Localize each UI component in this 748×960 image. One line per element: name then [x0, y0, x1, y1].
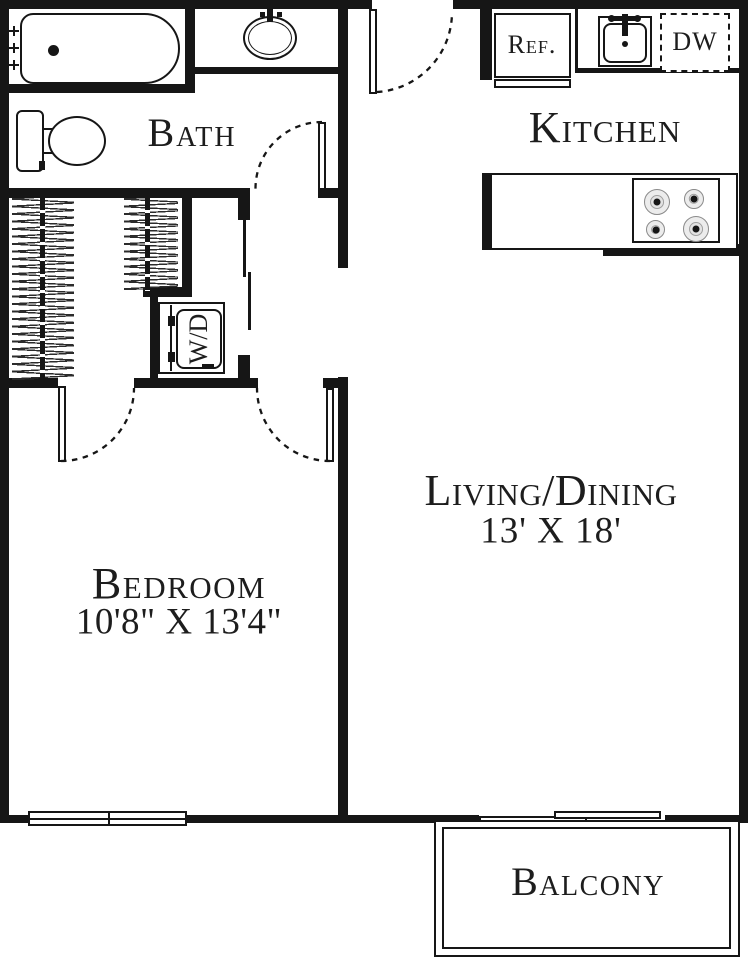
- balcony-label: Balcony: [511, 862, 665, 902]
- burner-dot: [691, 196, 698, 203]
- burner-dot: [654, 199, 661, 206]
- wall-bottom-bedroom-b: [187, 815, 345, 823]
- wall-left: [0, 0, 9, 823]
- wd-hinge-bottom: [168, 352, 175, 362]
- bedroom-closet-door-leaf: [58, 386, 66, 462]
- wall-tub-bottom: [9, 84, 195, 93]
- wall-kitchen-left: [480, 8, 492, 80]
- kitchen-faucet-handle-left: [608, 15, 615, 22]
- bath-label: Bath: [147, 113, 236, 153]
- kitchen-label: Kitchen: [529, 106, 681, 150]
- kitchen-sink-drain: [622, 41, 628, 47]
- kitchen-faucet-handle-right: [634, 15, 641, 22]
- entry-door-leaf: [369, 9, 377, 94]
- wall-bedroom-top-b: [134, 378, 258, 388]
- entry-door-swing-arc: [377, 12, 452, 92]
- burner-dot: [693, 226, 700, 233]
- counter-left-edge: [575, 9, 578, 72]
- bedroom-label: Bedroom: [92, 562, 266, 606]
- bedroom-dimensions: 10'8" X 13'4": [76, 604, 282, 641]
- living-dining-dimensions: 13' X 18': [480, 513, 622, 550]
- burner-dot: [652, 226, 659, 233]
- wd-hinge-top: [168, 316, 175, 326]
- bathroom-sink-handle-left: [260, 12, 265, 17]
- closet-door-jamb-top: [238, 198, 250, 220]
- bedroom-window: [28, 811, 187, 826]
- wall-closet2-right: [182, 198, 192, 297]
- kitchen-counter-end-cap: [482, 173, 492, 250]
- closet-rod-right: [145, 197, 150, 291]
- toilet-bowl: [48, 116, 106, 166]
- bath-door-leaf: [318, 122, 326, 190]
- sliding-glass-door-panel-b: [554, 811, 661, 819]
- wall-bottom-bedroom-a: [0, 815, 28, 823]
- bathroom-sink-handle-right: [277, 12, 282, 17]
- closet-rod-left: [40, 197, 45, 382]
- wall-bedroom-living-divider: [338, 377, 348, 823]
- living-dining-label: Living/Dining: [425, 469, 678, 513]
- bedroom-door-leaf: [326, 388, 334, 462]
- bedroom-closet-door-swing-arc: [61, 388, 134, 461]
- window-mullion: [108, 813, 110, 824]
- bathtub-drain: [48, 45, 59, 56]
- bedroom-door-swing-arc: [257, 388, 330, 461]
- kitchen-faucet-spout: [622, 14, 628, 36]
- toilet-hinge: [39, 161, 45, 170]
- wall-wd-left: [150, 297, 158, 380]
- refrigerator-label: Ref.: [508, 32, 557, 58]
- wall-right: [739, 0, 748, 820]
- bathroom-sink-faucet: [267, 9, 273, 22]
- closet-hangers-icon-right: [124, 198, 178, 290]
- dishwasher-label: DW: [672, 29, 717, 55]
- wall-bath-bottom-left: [0, 188, 250, 198]
- stove-burner-bottom-left: [646, 220, 665, 239]
- washer-dryer-label: W/D: [186, 314, 212, 365]
- wall-hall-living-upper: [338, 0, 348, 268]
- stove-burner-bottom-right: [683, 216, 709, 242]
- floor-plan: W/D Ref. DW: [0, 0, 748, 960]
- bathtub-icon: [20, 13, 180, 84]
- stove-burner-top-right: [684, 189, 704, 209]
- wall-vanity-half: [195, 67, 338, 74]
- bathroom-sink-inner: [248, 21, 292, 55]
- bath-door-swing-arc: [255, 122, 322, 189]
- wall-tub-right: [185, 0, 195, 93]
- tub-faucet-icon: [9, 26, 19, 70]
- wall-top-right: [453, 0, 748, 9]
- closet-door-jamb-bottom: [238, 355, 250, 378]
- sliding-closet-door-panel-a: [243, 220, 246, 277]
- sliding-closet-door-panel-b: [248, 272, 251, 330]
- refrigerator-front: [494, 79, 571, 88]
- wd-latch: [202, 364, 214, 369]
- stove-burner-top-left: [644, 189, 670, 215]
